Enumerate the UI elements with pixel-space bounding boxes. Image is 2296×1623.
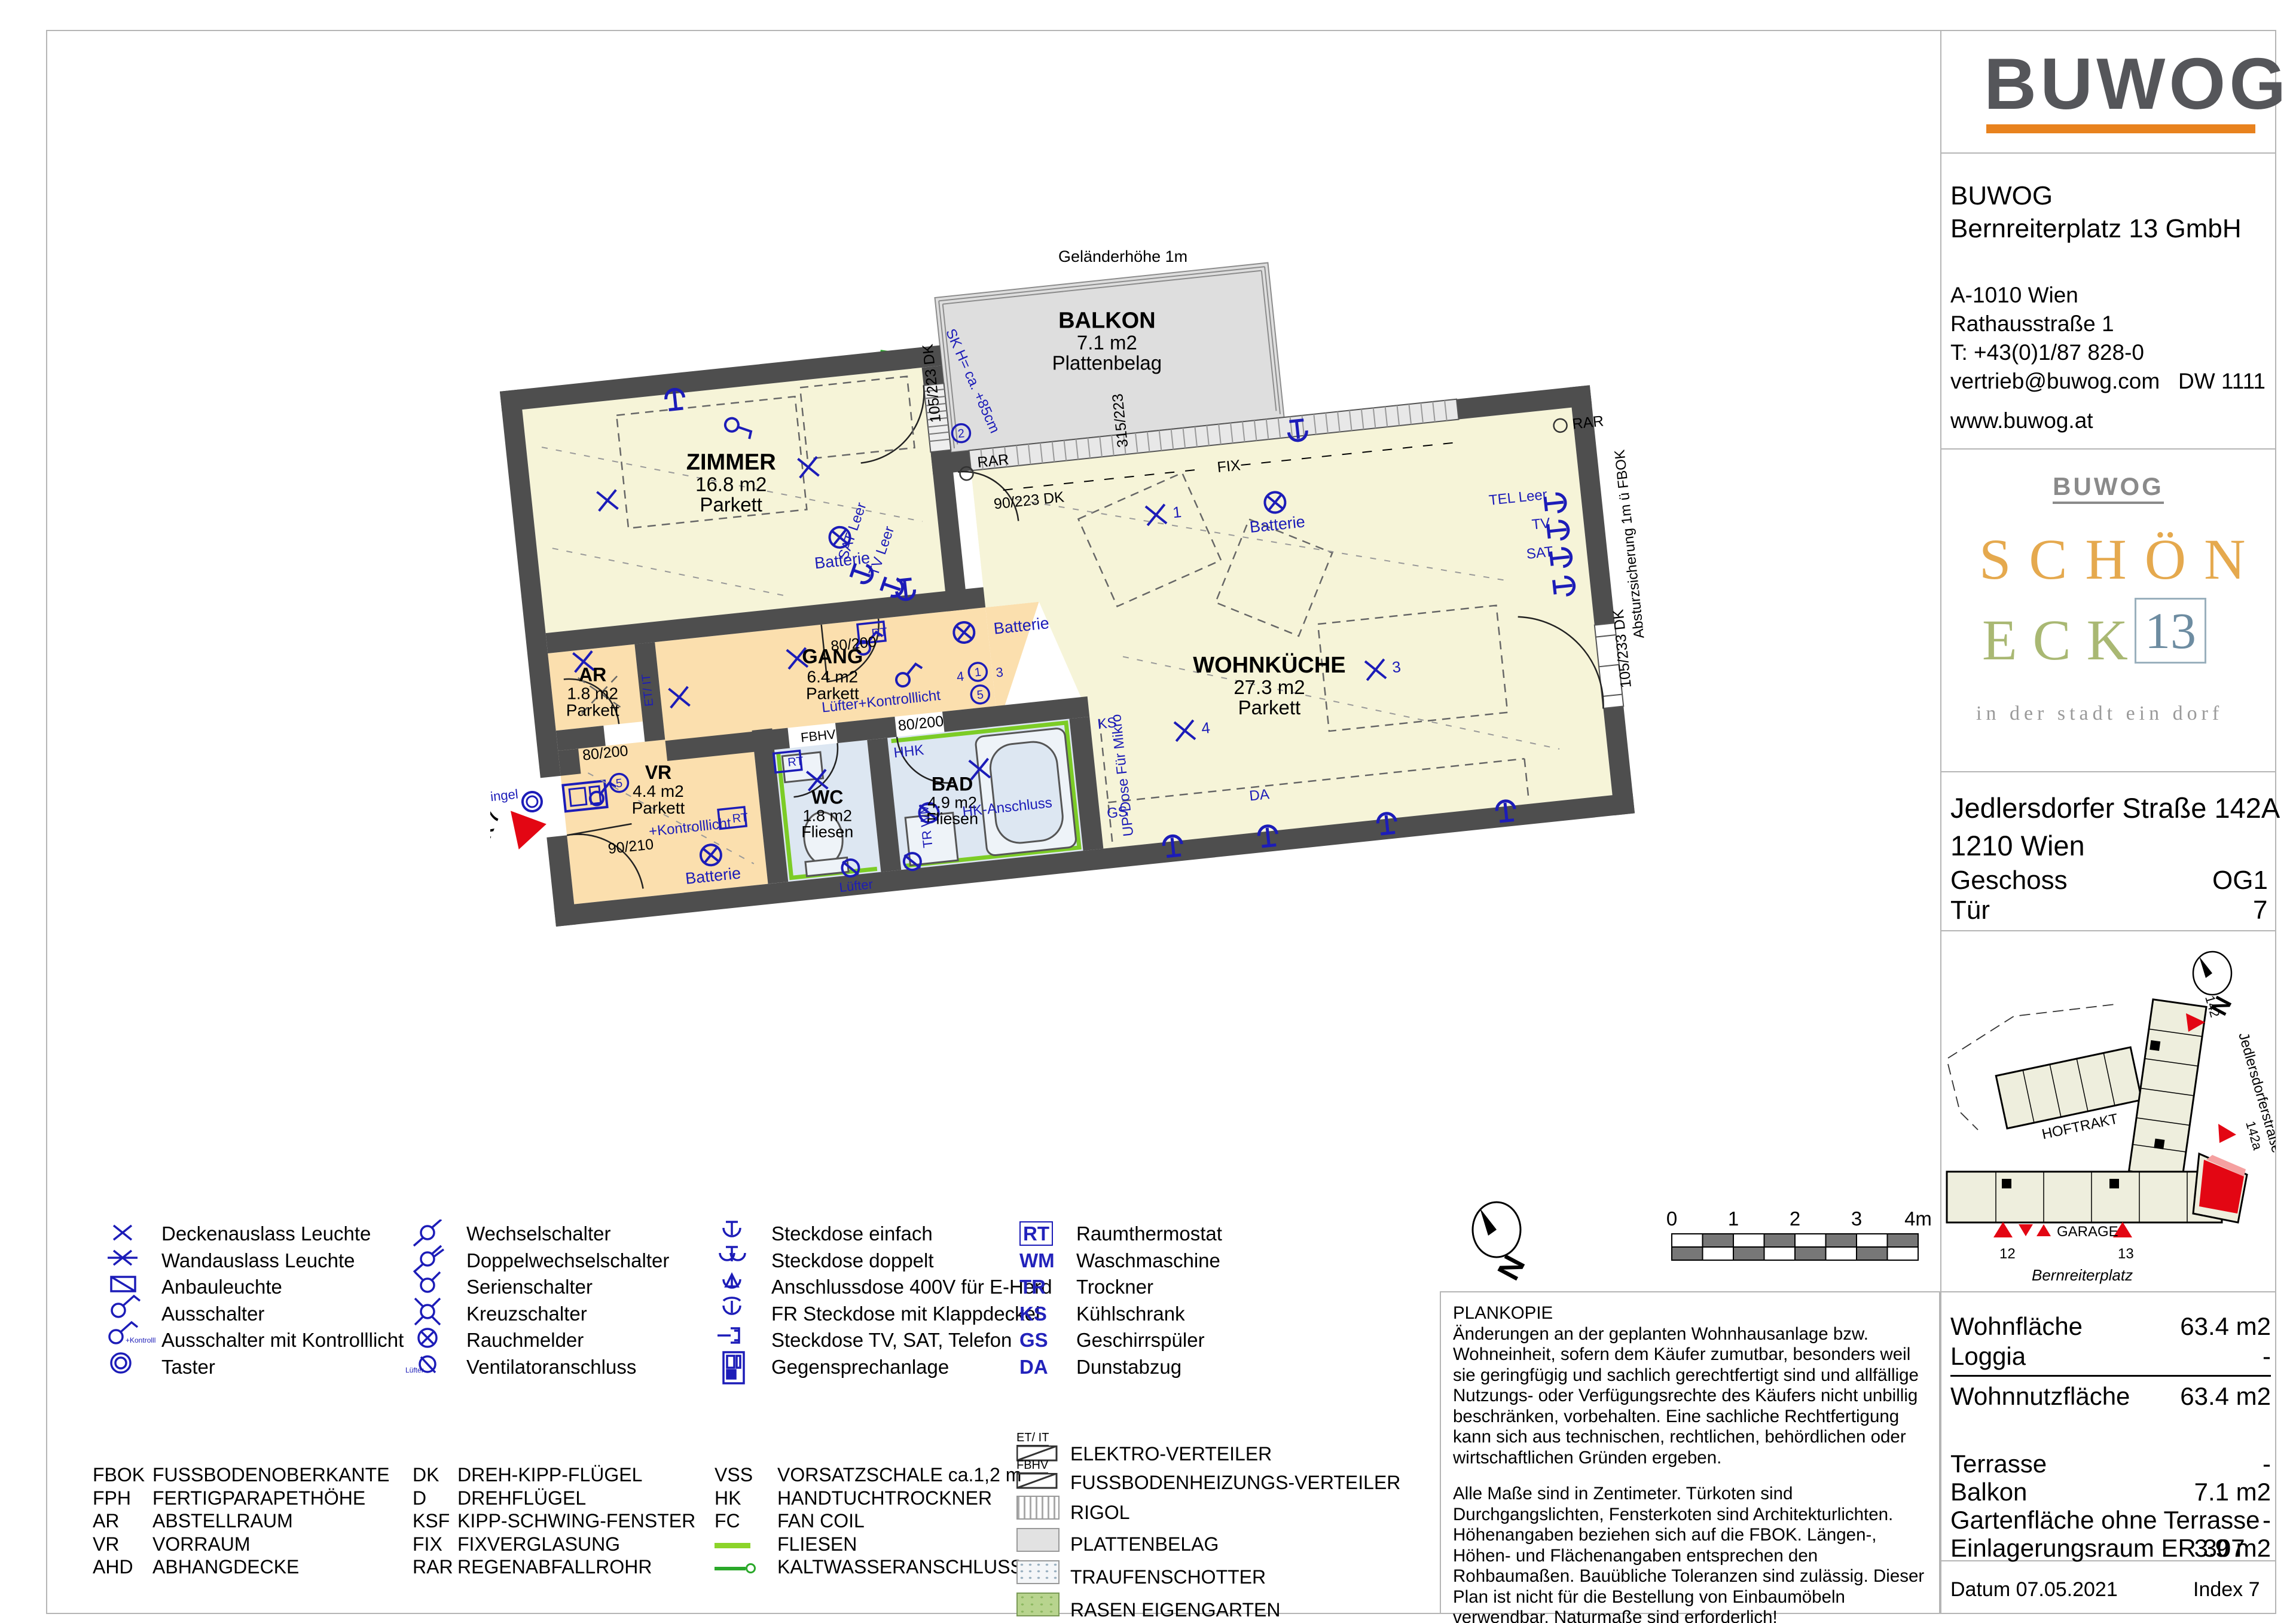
- legend-label: Wechselschalter: [466, 1221, 669, 1248]
- abbr-key: HK: [715, 1487, 756, 1510]
- buwog-logo-bar: [1986, 124, 2255, 133]
- fbhv-icon: FBHV: [1016, 1463, 1060, 1492]
- site-12-label: 12: [1999, 1246, 2016, 1262]
- sat-label: SAT: [1525, 543, 1554, 563]
- legend-abbr-wm: WM: [1019, 1248, 1055, 1274]
- num-4: 4: [956, 668, 965, 684]
- abbr-term: VORRAUM: [152, 1533, 390, 1556]
- abbr-term: RASEN EIGENGARTEN: [1070, 1594, 1400, 1623]
- brand-13: 13: [2135, 598, 2206, 664]
- rt-label-3: RT: [732, 811, 749, 826]
- divider: [1940, 448, 2276, 450]
- abbr-term: HANDTUCHTROCKNER: [777, 1487, 1023, 1510]
- steckdose-einfach-icon: [723, 1222, 740, 1236]
- scale-1: 1: [1728, 1208, 1739, 1230]
- divider: [1940, 1291, 2276, 1292]
- legend-abbr-ks: KS: [1019, 1301, 1055, 1328]
- legend-label: Kreuzschalter: [466, 1301, 669, 1328]
- gelaenderhoehe-label: Geländerhöhe 1m: [1058, 247, 1187, 265]
- buwog-logo: BUWOG: [1984, 42, 2289, 126]
- garage-triangle-up: [2037, 1224, 2051, 1236]
- divider: [1940, 930, 2276, 931]
- project-street: Jedlersdorfer Straße 142A: [1950, 789, 2280, 827]
- legend-label: Trockner: [1076, 1274, 1222, 1301]
- legend-label: Ausschalter: [161, 1301, 404, 1328]
- abbr-key: RAR: [413, 1555, 453, 1579]
- company-phone: T: +43(0)1/87 828-0: [1950, 338, 2266, 367]
- legend-abbr-gs: GS: [1019, 1327, 1055, 1354]
- abbr-term: FUSSBODENHEIZUNGS-VERTEILER: [1070, 1468, 1400, 1497]
- svg-text:Parkett: Parkett: [700, 493, 762, 515]
- legend-label: Ausschalter mit Kontrolllicht: [161, 1327, 404, 1354]
- tuer-label: Tür: [1950, 895, 1990, 925]
- abbr-term: KIPP-SCHWING-FENSTER: [457, 1509, 695, 1533]
- fr-steckdose-icon: [723, 1298, 740, 1314]
- svg-text:Plattenbelag: Plattenbelag: [1052, 352, 1162, 374]
- svg-text:4.4 m2: 4.4 m2: [633, 782, 684, 800]
- legend-label: Kühlschrank: [1076, 1301, 1222, 1328]
- svg-text:Lüfter: Lüfter: [405, 1366, 424, 1374]
- garage-label: GARAGE: [2057, 1224, 2118, 1240]
- abbr-key: VR: [93, 1533, 145, 1556]
- legend-label: FR Steckdose mit Klappdeckel: [771, 1301, 1052, 1328]
- legend-label: Geschirrspüler: [1076, 1327, 1222, 1354]
- rar-label-1: RAR: [976, 451, 1009, 471]
- legend-label: Taster: [161, 1354, 404, 1381]
- area-row-balkon: Balkon7.1 m2: [1950, 1478, 2271, 1506]
- legend-label: Dunstabzug: [1076, 1354, 1222, 1381]
- abbr-term: RIGOL: [1070, 1497, 1400, 1528]
- plankopie-title: PLANKOPIE: [1453, 1303, 1927, 1324]
- tuer7-label: TÜR 7: [490, 808, 504, 864]
- svg-text:BAD: BAD: [932, 774, 973, 795]
- abbr-term: FAN COIL: [777, 1509, 1023, 1533]
- legend-label: Steckdose einfach: [771, 1221, 1052, 1248]
- legend-label: Doppelwechselschalter: [466, 1248, 669, 1274]
- legend-label: Ventilatoranschluss: [466, 1354, 669, 1381]
- svg-text:1.8 m2: 1.8 m2: [802, 806, 852, 824]
- legend-label: Rauchmelder: [466, 1327, 669, 1354]
- ausschalter-kontrolllicht-icon: [109, 1330, 123, 1343]
- area-row-einlagerung: Einlagerungsraum ER 3073.9 m2: [1950, 1534, 2271, 1563]
- abbr-term: FERTIGPARAPETHÖHE: [152, 1487, 390, 1510]
- plattenbelag-swatch: [1016, 1528, 1060, 1552]
- abbr-term: DREH-KIPP-FLÜGEL: [457, 1463, 695, 1487]
- svg-text:27.3 m2: 27.3 m2: [1234, 676, 1305, 698]
- area-row-loggia: Loggia-: [1950, 1342, 2271, 1371]
- abbr-key: KSF: [413, 1509, 453, 1533]
- abbr-key: AHD: [93, 1555, 145, 1579]
- abbr-term: DREHFLÜGEL: [457, 1487, 695, 1510]
- company-line1: BUWOG: [1950, 179, 2242, 212]
- company-email: vertrieb@buwog.com: [1950, 369, 2160, 393]
- legend-label: Deckenauslass Leuchte: [161, 1221, 404, 1248]
- tv-label: TV: [1531, 515, 1551, 533]
- brand-buwog: BUWOG: [2053, 472, 2164, 504]
- abbr-key: D: [413, 1487, 453, 1510]
- svg-text:ZIMMER: ZIMMER: [686, 450, 776, 475]
- svg-text:6.4 m2: 6.4 m2: [807, 667, 858, 686]
- rigol-swatch: [1016, 1496, 1060, 1520]
- legend-abbr-da: DA: [1019, 1354, 1055, 1381]
- legend-symbols-col1: +Kontrolllicht: [90, 1219, 155, 1381]
- svg-text:BALKON: BALKON: [1058, 308, 1156, 333]
- legend-label: Anschlussdose 400V für E-Herd: [771, 1274, 1052, 1301]
- bernreiterplatz-label: Bernreiterplatz: [2032, 1266, 2133, 1284]
- ausschalter-icon: [112, 1304, 125, 1317]
- floor-plan: Geländerhöhe 1m: [490, 215, 1782, 1052]
- fbhv-label: FBHV: [800, 726, 836, 745]
- entry-triangle-142a: [2218, 1124, 2236, 1143]
- circle-num-5: 5: [976, 688, 984, 702]
- index: Index 7: [2193, 1578, 2260, 1601]
- svg-text:Parkett: Parkett: [566, 701, 619, 719]
- abbr-term: TRAUFENSCHOTTER: [1070, 1561, 1400, 1594]
- garage-triangle-down: [2019, 1224, 2033, 1236]
- area-sum-line: [1950, 1375, 2271, 1377]
- abbr-term: REGENABFALLROHR: [457, 1555, 695, 1579]
- rt-label-2: RT: [787, 754, 804, 769]
- abbr-term: KALTWASSERANSCHLUSS: [777, 1555, 1023, 1579]
- legend-label: Steckdose TV, SAT, Telefon: [771, 1327, 1052, 1354]
- abbr-term: ABHANGDECKE: [152, 1555, 390, 1579]
- abbr-key: FBOK: [93, 1463, 145, 1487]
- svg-text:AR: AR: [579, 664, 606, 685]
- geschoss-value: OG1: [2212, 866, 2268, 895]
- site-plan: N HOFTRAKT Jedlersdorferstraße 142 142: [1942, 933, 2276, 1291]
- abbr-key: FPH: [93, 1487, 145, 1510]
- bad-label: BAD 4.9 m2 Fliesen: [926, 774, 978, 828]
- num-3: 3: [995, 665, 1004, 680]
- legend-label: Anbauleuchte: [161, 1274, 404, 1301]
- da-label: DA: [1248, 786, 1270, 804]
- circle-num-1: 1: [974, 665, 982, 679]
- north-arrow: N: [1462, 1199, 1546, 1282]
- divider: [1940, 771, 2276, 772]
- geschoss-label: Geschoss: [1950, 866, 2068, 895]
- svg-text:N: N: [1490, 1249, 1531, 1282]
- abbr-term: FUSSBODENOBERKANTE: [152, 1463, 390, 1487]
- anschlussdose-eherd-icon: [723, 1274, 740, 1288]
- plankopie-p2: Alle Maße sind in Zentimeter. Türkoten s…: [1453, 1484, 1927, 1623]
- area-row-wohnnutzflaeche: Wohnnutzfläche63.4 m2: [1950, 1382, 2271, 1411]
- wandauslass-icon: [108, 1251, 138, 1265]
- site-13-label: 13: [2118, 1246, 2134, 1262]
- abbr-key: VSS: [715, 1463, 756, 1487]
- svg-text:Fliesen: Fliesen: [801, 823, 853, 840]
- legend-label: Steckdose doppelt: [771, 1248, 1052, 1274]
- brand-claim: in der stadt ein dorf: [1976, 702, 2223, 725]
- fliesen-line-icon: [715, 1533, 756, 1556]
- legend-symbols-col3: [700, 1219, 765, 1387]
- legend-label: Waschmaschine: [1076, 1248, 1222, 1274]
- brand-schoen: SCHÖN: [1979, 526, 2263, 592]
- abbr-term: ELEKTRO-VERTEILER: [1070, 1439, 1400, 1468]
- tuer-value: 7: [2253, 895, 2267, 925]
- datum: Datum 07.05.2021: [1950, 1578, 2118, 1601]
- project-city: 1210 Wien: [1950, 827, 2280, 864]
- svg-text:16.8 m2: 16.8 m2: [695, 473, 767, 495]
- abbr-term: ABSTELLRAUM: [152, 1509, 390, 1533]
- wing-bottom: [1947, 1172, 2222, 1222]
- plankopie-p1: Änderungen an der geplanten Wohnhausanla…: [1453, 1324, 1927, 1469]
- divider: [1940, 152, 2276, 154]
- deckenauslass-icon: [114, 1225, 132, 1240]
- company-city: A-1010 Wien: [1950, 281, 2266, 310]
- scale-4m: 4m: [1904, 1208, 1932, 1230]
- abbr-key: FIX: [413, 1533, 453, 1556]
- klingel-label: Klingel: [490, 786, 519, 805]
- legend-abbr-rt: RT: [1019, 1221, 1055, 1248]
- abbr-term: PLATTENBELAG: [1070, 1528, 1400, 1561]
- abbr-term: FIXVERGLASUNG: [457, 1533, 695, 1556]
- svg-text:7.1 m2: 7.1 m2: [1077, 331, 1137, 353]
- legend-abbr-tr: TR: [1019, 1274, 1055, 1301]
- floorplan-sheet: Geländerhöhe 1m: [0, 0, 2296, 1623]
- legend-label: Raumthermostat: [1076, 1221, 1222, 1248]
- sidebar-divider: [1940, 30, 1941, 1614]
- taster-icon: [111, 1353, 130, 1373]
- traufenschotter-swatch: [1016, 1560, 1060, 1584]
- svg-text:Parkett: Parkett: [632, 799, 685, 817]
- legend-label: Gegensprechanlage: [771, 1354, 1052, 1381]
- svg-text:VR: VR: [645, 762, 671, 783]
- hhk-label: HHK: [893, 742, 924, 761]
- circle-num-5b: 5: [615, 777, 623, 790]
- bad-door-dim: 80/200: [897, 713, 945, 734]
- scale-0: 0: [1666, 1208, 1677, 1230]
- plankopie-box: PLANKOPIE Änderungen an der geplanten Wo…: [1440, 1291, 1940, 1614]
- steckdose-tv-sat-icon: [717, 1328, 739, 1343]
- svg-text:+Kontrolllicht: +Kontrolllicht: [126, 1336, 155, 1344]
- legend-label: Serienschalter: [466, 1274, 669, 1301]
- legend-label: Wandauslass Leuchte: [161, 1248, 404, 1274]
- hoftrakt-building: [1996, 1047, 2142, 1129]
- area-row-terrasse: Terrasse-: [1950, 1450, 2271, 1478]
- legend-symbols-col2: Lüfter: [395, 1219, 460, 1381]
- abbr-key: AR: [93, 1509, 145, 1533]
- scale-3: 3: [1851, 1208, 1862, 1230]
- steckdose-doppelt-icon: [720, 1247, 745, 1261]
- svg-text:WOHNKÜCHE: WOHNKÜCHE: [1193, 652, 1345, 678]
- abbr-term: VORSATZSCHALE ca.1,2 m: [777, 1463, 1023, 1487]
- svg-text:Parkett: Parkett: [1238, 696, 1301, 719]
- rasen-swatch: [1016, 1593, 1060, 1616]
- fix-label: FIX: [1216, 457, 1241, 476]
- abbr-term: FLIESEN: [777, 1533, 1023, 1556]
- area-row-garten: Gartenfläche ohne Terrasse-: [1950, 1506, 2271, 1535]
- entry-triangle-12: [1993, 1222, 2013, 1237]
- company-street: Rathausstraße 1: [1950, 310, 2266, 338]
- brand-eck: ECK: [1982, 607, 2144, 673]
- circle-num-2: 2: [957, 427, 965, 441]
- company-web: www.buwog.at: [1950, 406, 2093, 435]
- abbr-key: DK: [413, 1463, 453, 1487]
- company-line2: Bernreiterplatz 13 GmbH: [1950, 212, 2242, 245]
- svg-text:1.8 m2: 1.8 m2: [567, 684, 618, 702]
- svg-text:WC: WC: [811, 786, 843, 808]
- rar-label-2: RAR: [1571, 412, 1604, 432]
- scale-bar: 0 1 2 3 4m: [1656, 1208, 1943, 1273]
- company-dw: DW 1111: [2178, 369, 2266, 393]
- scale-2: 2: [1790, 1208, 1800, 1230]
- area-row-wohnflaeche: Wohnfläche63.4 m2: [1950, 1312, 2271, 1341]
- kaltwasser-line-icon: [715, 1555, 756, 1579]
- abbr-key: FC: [715, 1509, 756, 1533]
